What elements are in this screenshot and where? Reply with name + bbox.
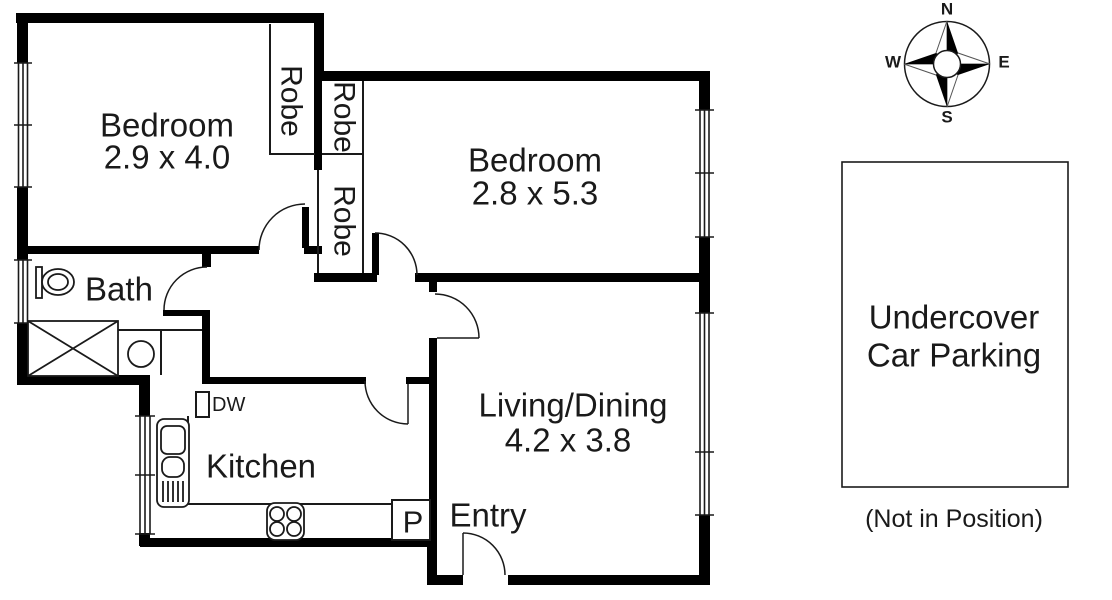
dishwasher-box: [196, 392, 209, 417]
window-bedroom2-east: [695, 110, 714, 237]
bedroom2-door-arc: [375, 233, 417, 275]
parking-note: (Not in Position): [865, 505, 1043, 533]
compass-rose: N E S W: [885, 0, 1010, 127]
kitchen-sink-bowl1: [161, 426, 185, 454]
kitchen-sink-bowl2: [162, 457, 184, 477]
robe2-label: Robe: [328, 81, 361, 153]
entry-door-arc: [463, 533, 505, 575]
wall-kitchen-top: [202, 377, 366, 384]
wall-right-upper: [699, 81, 710, 110]
wall-bottom-porch: [434, 575, 463, 585]
wall-robe-bottom: [314, 273, 377, 282]
bath-door-leaf: [163, 310, 207, 316]
robe1-label: Robe: [275, 65, 308, 137]
wall-bottom-living: [508, 575, 710, 585]
compass-south-label: S: [941, 108, 952, 127]
pantry-label: P: [403, 505, 424, 540]
cooktop-burner-1: [270, 507, 284, 521]
kitchen-label: Kitchen: [206, 448, 316, 485]
bedroom2-door-leaf: [372, 233, 379, 275]
compass-north-label: N: [941, 0, 953, 19]
wall-top-bedroom2: [314, 71, 710, 81]
bedroom1-door-leaf: [302, 207, 309, 248]
wall-top-bedroom1: [16, 13, 324, 23]
window-kitchen-west: [135, 416, 155, 534]
compass-east-label: E: [998, 53, 1009, 72]
parking-title-line1: Undercover: [869, 299, 1040, 336]
cooktop-burner-4: [287, 522, 301, 536]
living-door-arc: [435, 294, 479, 338]
parking-area: Undercover Car Parking (Not in Position): [842, 162, 1068, 533]
toilet-tank: [36, 267, 42, 298]
wall-kitchen-door-jamb: [406, 377, 437, 384]
cooktop-burner-3: [270, 522, 284, 536]
wall-right-lower: [699, 515, 710, 585]
bath-door-arc: [164, 267, 207, 310]
bedroom1-door-arc: [259, 204, 305, 250]
wall-left-a: [17, 13, 28, 63]
parking-title-line2: Car Parking: [867, 337, 1041, 374]
entry-label: Entry: [449, 497, 527, 534]
living-dims-label: 4.2 x 3.8: [505, 422, 632, 459]
wall-left-c: [17, 323, 28, 385]
window-living-east: [695, 313, 714, 515]
bedroom2-dims-label: 2.8 x 5.3: [472, 175, 599, 212]
wall-bath-east: [202, 310, 210, 384]
window-bedroom1-west: [14, 63, 32, 187]
wall-bedroom-divider: [314, 23, 322, 170]
floorplan-canvas: Bedroom 2.9 x 4.0 Bedroom 2.8 x 5.3 Bath…: [0, 0, 1112, 600]
wall-entry-step: [427, 542, 437, 585]
bath-label: Bath: [85, 271, 153, 308]
compass-inner-circle: [934, 51, 961, 78]
bedroom2-name-label: Bedroom: [468, 142, 602, 179]
dishwasher-label: DW: [212, 394, 245, 416]
living-name-label: Living/Dining: [479, 387, 668, 424]
wall-bedroom2-bottom: [415, 273, 700, 282]
wall-kitchen-left-corner: [139, 533, 150, 546]
wall-bedroom1-bottom: [17, 246, 259, 254]
vanity-basin: [128, 341, 154, 367]
compass-west-label: W: [885, 53, 902, 72]
robe3-label: Robe: [328, 185, 361, 257]
wall-right-middle: [699, 237, 710, 313]
window-bath-west: [14, 260, 32, 323]
wall-living-west-top: [429, 273, 437, 292]
toilet-bowl-inner: [48, 274, 68, 290]
fixtures: [28, 267, 304, 540]
bedroom1-dims-label: 2.9 x 4.0: [104, 139, 231, 176]
kitchen-door-arc: [365, 381, 408, 424]
wall-bath-door-jamb: [202, 246, 211, 267]
cooktop-burner-2: [287, 507, 301, 521]
